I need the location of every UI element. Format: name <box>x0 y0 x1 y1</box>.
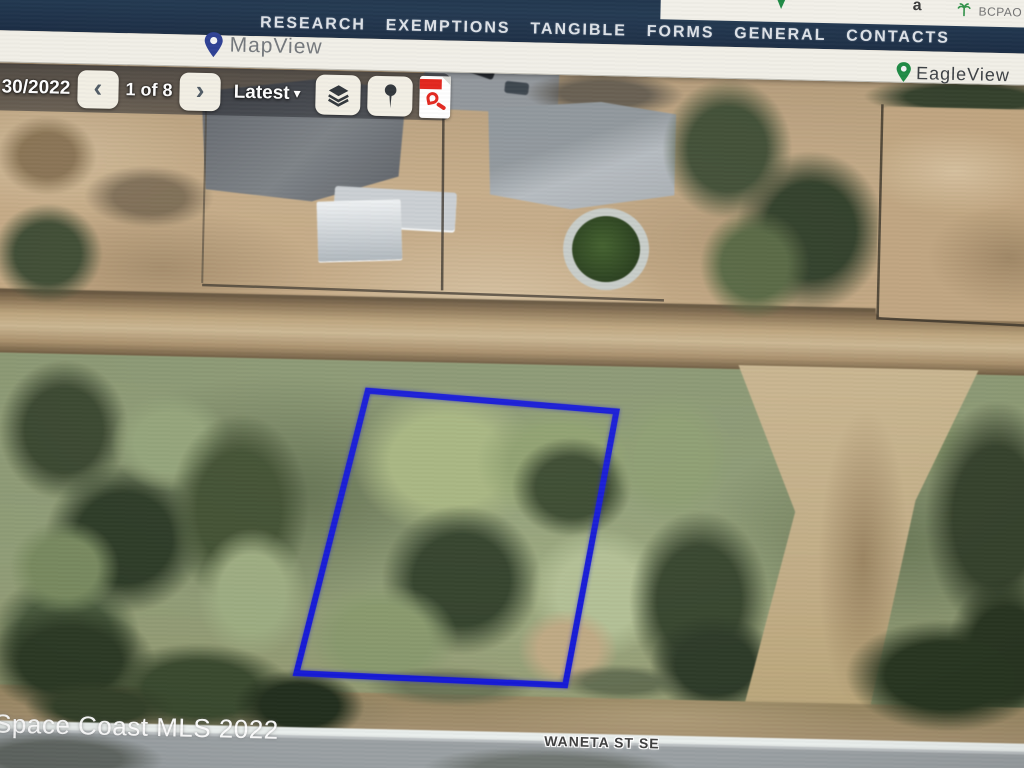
eagleview-pin-icon <box>894 61 914 85</box>
nav-item-exemptions[interactable]: EXEMPTIONS <box>385 17 510 38</box>
latest-label: Latest <box>233 81 289 104</box>
latest-dropdown[interactable]: Latest ▾ <box>233 81 300 105</box>
nav-item-general[interactable]: GENERAL <box>734 25 827 45</box>
shed-roof <box>317 199 403 261</box>
nav-item-tangible[interactable]: TANGIBLE <box>530 20 627 40</box>
site-title: BCPAO ... <box>978 4 1024 19</box>
eagleview-label: EagleView <box>916 63 1010 86</box>
pdf-red-band <box>420 78 442 88</box>
mls-watermark: Space Coast MLS 2022 <box>0 708 279 745</box>
street-label: WANETA ST SE <box>527 732 677 751</box>
pdf-swirl-leg <box>436 101 446 109</box>
layers-button[interactable] <box>315 74 361 115</box>
mapview-tab[interactable]: MapView <box>201 30 323 63</box>
aerial-imagery[interactable] <box>0 62 1024 768</box>
pushpin-icon <box>378 82 403 109</box>
map-controls: 30/2022 ‹ 1 of 8 › Latest ▾ <box>0 63 451 121</box>
location-pin-tip-icon <box>776 0 787 9</box>
house-roof-right <box>486 99 676 211</box>
mapview-label: MapView <box>229 34 323 60</box>
accessibility-icon[interactable]: a <box>912 0 921 15</box>
chevron-down-icon: ▾ <box>293 85 300 102</box>
nav-item-contacts[interactable]: CONTACTS <box>846 27 950 47</box>
layers-icon <box>325 81 352 108</box>
photo-counter: 1 of 8 <box>125 79 172 101</box>
palm-tree-icon <box>956 2 971 17</box>
pdf-page-fold <box>442 76 451 85</box>
pdf-export-icon[interactable] <box>419 75 451 118</box>
pushpin-button[interactable] <box>367 75 413 116</box>
nav-item-forms[interactable]: FORMS <box>647 23 715 43</box>
eagleview-link[interactable]: EagleView <box>894 60 1010 89</box>
fenced-dirt-lot <box>876 106 1024 322</box>
photo-date-label: 30/2022 <box>1 76 70 100</box>
prev-photo-button[interactable]: ‹ <box>77 70 119 109</box>
next-photo-button[interactable]: › <box>179 72 221 111</box>
screen-photo: a BCPAO ... RESEARCH EXEMPTIONS TANGIBLE… <box>0 0 1024 768</box>
map-pin-icon <box>201 30 226 60</box>
bcpao-website: a BCPAO ... RESEARCH EXEMPTIONS TANGIBLE… <box>0 0 1024 768</box>
